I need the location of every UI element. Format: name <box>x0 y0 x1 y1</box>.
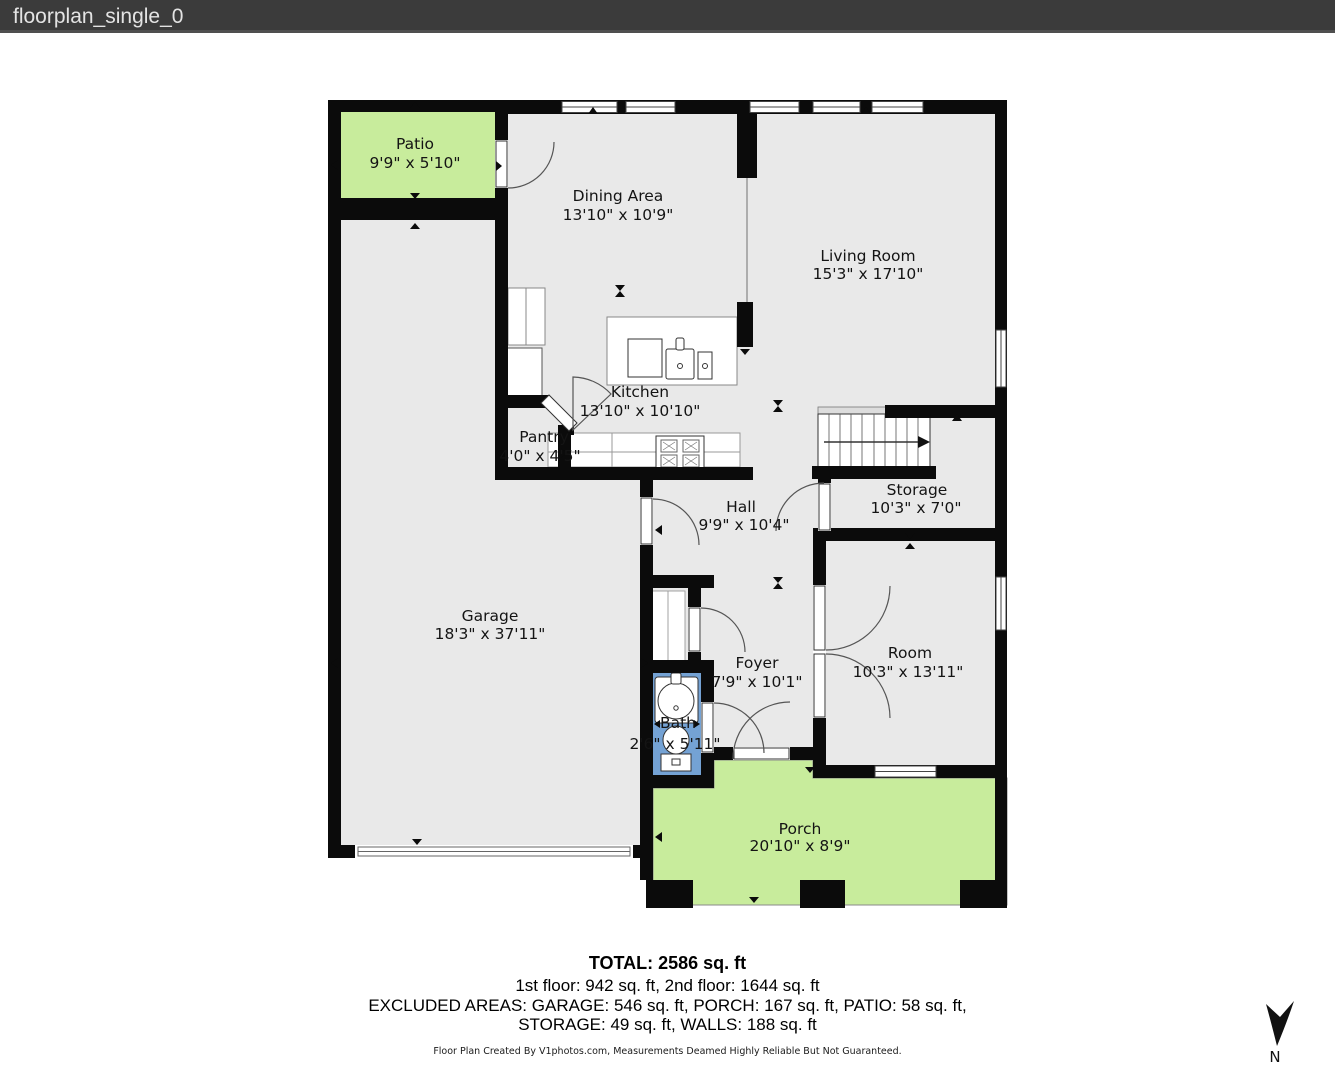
faucet <box>676 338 684 350</box>
porch-dims: 20'10" x 8'9" <box>750 837 851 855</box>
window <box>626 102 675 113</box>
window <box>872 102 923 113</box>
window <box>996 330 1006 387</box>
storage-dims: 10'3" x 7'0" <box>870 499 961 517</box>
porch-post <box>800 880 845 908</box>
floor-garage <box>335 205 648 852</box>
hall-dims: 9'9" x 10'4" <box>698 516 789 534</box>
floorplan-drawing: Patio 9'9" x 5'10" Dining Area 13'10" x … <box>0 0 1335 1080</box>
window <box>562 102 617 113</box>
dining-dims: 13'10" x 10'9" <box>563 206 674 224</box>
living-dims: 15'3" x 17'10" <box>813 265 924 283</box>
pantry-label: Pantry <box>519 428 569 446</box>
pantry-dims: 4'0" x 4'5" <box>499 447 580 465</box>
door-leaf <box>814 586 825 650</box>
total-area: TOTAL: 2586 sq. ft <box>0 953 1335 974</box>
kitchen-cabinets <box>506 288 545 396</box>
foyer-label: Foyer <box>736 654 780 672</box>
porch-post <box>960 880 1007 908</box>
door-leaf <box>814 654 825 717</box>
window <box>875 766 936 777</box>
refrigerator <box>506 348 542 396</box>
kitchen-island <box>607 317 737 385</box>
kitchen-label: Kitchen <box>611 383 669 401</box>
living-label: Living Room <box>820 247 915 265</box>
kitchen-dims: 13'10" x 10'10" <box>580 402 701 420</box>
door-leaf <box>689 608 700 651</box>
door-leaf <box>819 484 830 530</box>
dining-label: Dining Area <box>573 187 664 205</box>
closet <box>651 591 685 664</box>
foyer-dims: 7'9" x 10'1" <box>711 673 802 691</box>
bath-dims: 2'6" x 5'11" <box>629 735 720 753</box>
patio-label: Patio <box>396 135 434 153</box>
room-label: Room <box>888 644 932 662</box>
excluded-areas-line2: STORAGE: 49 sq. ft, WALLS: 188 sq. ft <box>0 1015 1335 1035</box>
bath-label: Bath <box>660 714 696 732</box>
excluded-areas-line1: EXCLUDED AREAS: GARAGE: 546 sq. ft, PORC… <box>0 996 1335 1016</box>
garage-door <box>358 847 630 856</box>
hall-label: Hall <box>726 498 756 516</box>
room-dims: 10'3" x 13'11" <box>853 663 964 681</box>
credit-line: Floor Plan Created By V1photos.com, Meas… <box>0 1046 1335 1057</box>
area-summary: TOTAL: 2586 sq. ft 1st floor: 942 sq. ft… <box>0 953 1335 1035</box>
stove <box>656 436 704 469</box>
window <box>750 102 799 113</box>
porch-post <box>646 880 693 908</box>
garage-dims: 18'3" x 37'11" <box>435 625 546 643</box>
front-door-leaf <box>734 748 789 759</box>
door-leaf <box>641 498 652 544</box>
window <box>813 102 860 113</box>
floorplan-page: floorplan_single_0 <box>0 0 1335 1080</box>
floor-areas-line: 1st floor: 942 sq. ft, 2nd floor: 1644 s… <box>0 976 1335 996</box>
garage-label: Garage <box>462 607 519 625</box>
patio-dims: 9'9" x 5'10" <box>369 154 460 172</box>
porch-label: Porch <box>779 820 822 838</box>
window <box>996 577 1006 630</box>
storage-label: Storage <box>887 481 948 499</box>
